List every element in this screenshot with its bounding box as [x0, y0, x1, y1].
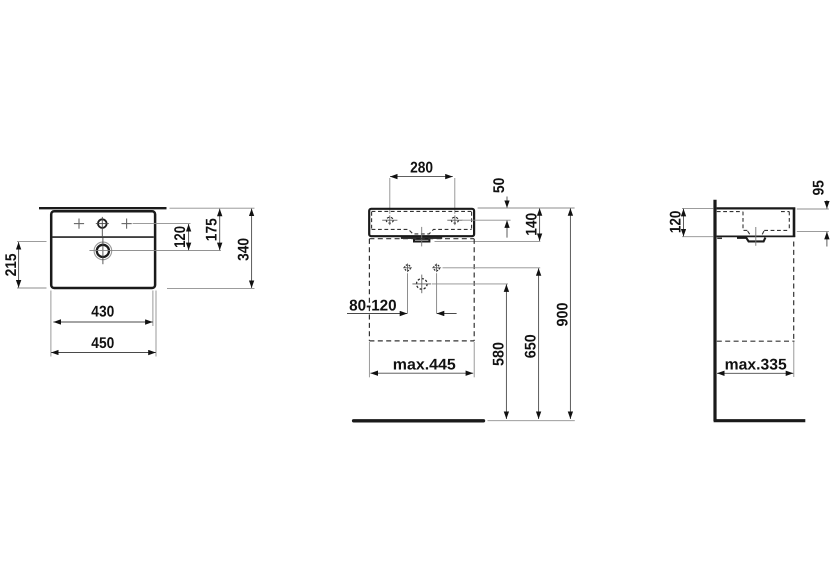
svg-text:max.445: max.445 — [393, 357, 456, 374]
svg-text:340: 340 — [236, 238, 253, 261]
svg-text:120: 120 — [667, 211, 684, 234]
svg-text:580: 580 — [490, 342, 507, 366]
svg-text:50: 50 — [491, 178, 508, 194]
svg-text:900: 900 — [554, 303, 571, 327]
svg-text:450: 450 — [91, 335, 114, 352]
svg-text:140: 140 — [524, 213, 541, 236]
svg-text:650: 650 — [523, 334, 540, 358]
svg-text:215: 215 — [3, 253, 20, 276]
svg-text:120: 120 — [172, 226, 189, 248]
svg-text:95: 95 — [810, 180, 827, 196]
svg-text:max.335: max.335 — [725, 356, 787, 373]
svg-text:80-120: 80-120 — [349, 297, 397, 314]
svg-text:430: 430 — [91, 304, 114, 321]
svg-text:175: 175 — [204, 218, 221, 241]
svg-text:280: 280 — [410, 160, 433, 177]
